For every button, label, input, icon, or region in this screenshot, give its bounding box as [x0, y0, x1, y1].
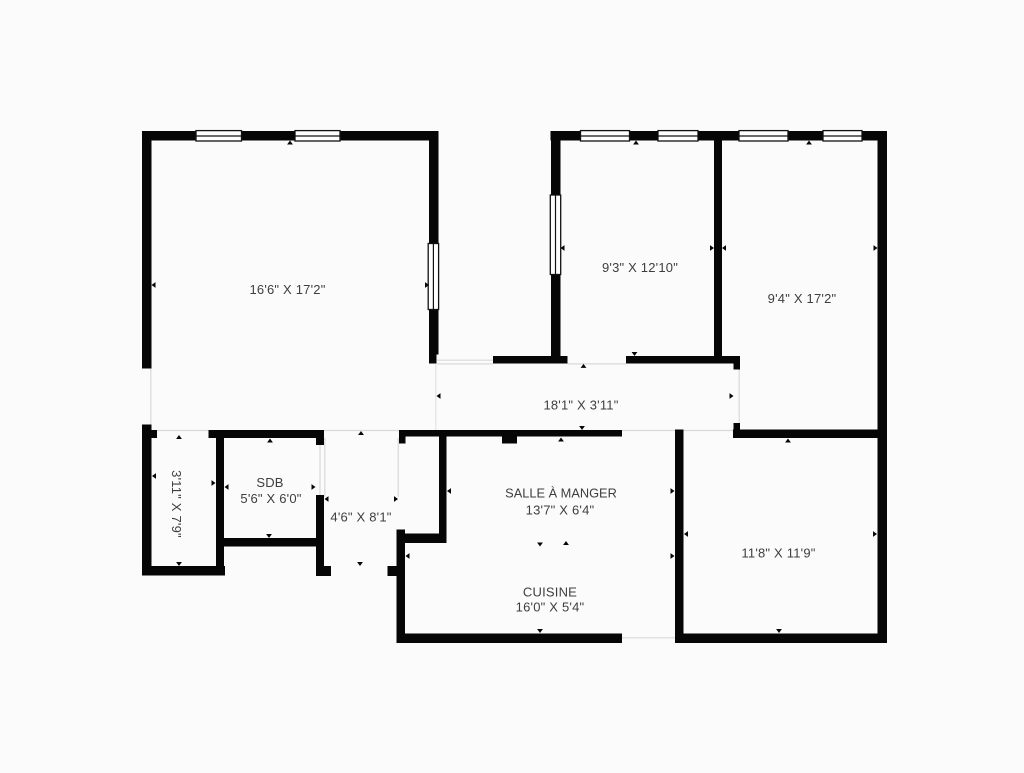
svg-text:18'1" X 3'11": 18'1" X 3'11": [543, 398, 618, 413]
svg-text:13'7" X 6'4": 13'7" X 6'4": [526, 503, 595, 518]
svg-text:16'0" X 5'4": 16'0" X 5'4": [516, 600, 585, 615]
svg-text:9'4" X 17'2": 9'4" X 17'2": [768, 291, 837, 306]
svg-text:9'3" X 12'10": 9'3" X 12'10": [602, 260, 678, 275]
svg-text:4'6" X 8'1": 4'6" X 8'1": [330, 510, 391, 525]
svg-text:5'6" X 6'0": 5'6" X 6'0": [240, 491, 301, 506]
svg-text:3'11" X 7'9": 3'11" X 7'9": [169, 470, 184, 538]
svg-text:CUISINE: CUISINE: [523, 585, 577, 600]
svg-text:SALLE À MANGER: SALLE À MANGER: [505, 486, 617, 501]
svg-text:SDB: SDB: [256, 475, 283, 490]
svg-text:11'8" X 11'9": 11'8" X 11'9": [741, 546, 815, 561]
svg-text:16'6" X 17'2": 16'6" X 17'2": [249, 282, 325, 297]
